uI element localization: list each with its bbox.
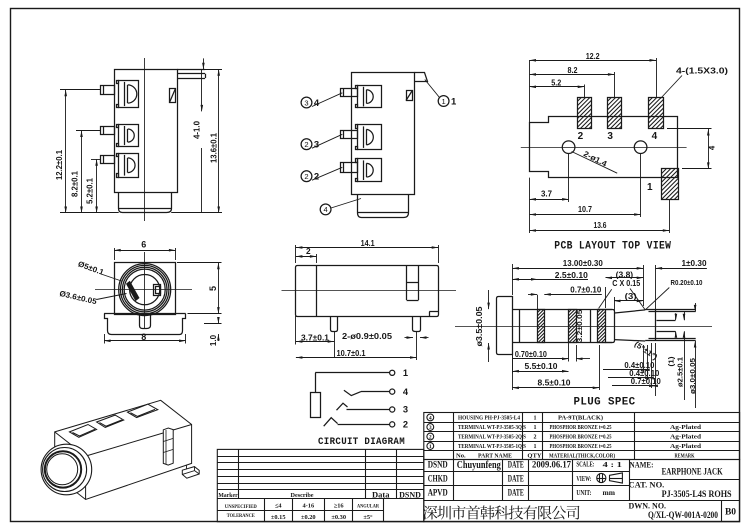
svg-text:R0.20±0.10: R0.20±0.10	[671, 278, 703, 287]
svg-text:0.7±0.10: 0.7±0.10	[631, 377, 662, 386]
svg-text:UNIT:: UNIT:	[576, 489, 591, 497]
svg-text:C X 0.15: C X 0.15	[612, 279, 641, 288]
svg-text:Ø3.6±0.05: Ø3.6±0.05	[59, 289, 99, 306]
svg-text:1±0.30: 1±0.30	[682, 259, 708, 268]
svg-text:ø3.0±0.05: ø3.0±0.05	[688, 357, 697, 394]
svg-text:≤4: ≤4	[275, 503, 283, 510]
svg-text:13.6: 13.6	[594, 221, 608, 230]
svg-text:2009.06.17: 2009.06.17	[532, 461, 571, 471]
svg-text:12.2±0.1: 12.2±0.1	[55, 149, 64, 180]
svg-text:DSND: DSND	[399, 491, 421, 500]
svg-text:PHOSPHOR BRONZE t=0.25: PHOSPHOR BRONZE t=0.25	[550, 435, 612, 441]
svg-text:Ø5±0.1: Ø5±0.1	[77, 259, 106, 277]
svg-text:2.5±0.10: 2.5±0.10	[555, 271, 589, 280]
svg-text:10.7±0.1: 10.7±0.1	[337, 349, 367, 358]
svg-text:5.5±0.10: 5.5±0.10	[525, 362, 559, 371]
svg-text:1: 1	[441, 97, 445, 106]
svg-text:3: 3	[304, 98, 308, 107]
svg-text:5.2±0.1: 5.2±0.1	[86, 177, 95, 204]
svg-text:Ag-Plated: Ag-Plated	[670, 444, 702, 450]
svg-text:3: 3	[403, 405, 408, 415]
svg-text:2: 2	[304, 172, 308, 181]
svg-text:3: 3	[607, 131, 613, 142]
svg-text:SCALE:: SCALE:	[576, 461, 594, 469]
svg-text:HOUSING PH-PJ-3505-L4: HOUSING PH-PJ-3505-L4	[458, 416, 520, 422]
svg-text:Ag-Plated: Ag-Plated	[670, 425, 702, 431]
svg-text:ANGULAR: ANGULAR	[357, 504, 380, 510]
svg-text:14.1: 14.1	[361, 239, 376, 248]
svg-text:13.6±0.1: 13.6±0.1	[210, 132, 219, 163]
svg-text:DATE: DATE	[508, 473, 524, 483]
svg-text:(3): (3)	[625, 292, 638, 301]
svg-text:PA-9T(BLACK): PA-9T(BLACK)	[558, 415, 603, 422]
svg-text:1: 1	[403, 368, 408, 378]
svg-text:8.2: 8.2	[568, 66, 579, 75]
svg-text:3.2±0.05: 3.2±0.05	[575, 310, 584, 343]
svg-text:No.: No.	[456, 452, 466, 459]
svg-text:CHKD: CHKD	[428, 473, 448, 483]
svg-text:6: 6	[141, 240, 146, 250]
svg-text:DATE: DATE	[508, 460, 524, 470]
svg-text:Q/XL-QW-001A-0200: Q/XL-QW-001A-0200	[648, 510, 718, 520]
svg-text:TERMINAL WT-PJ-3505-2Q.S: TERMINAL WT-PJ-3505-2Q.S	[458, 435, 527, 441]
svg-text:1: 1	[534, 416, 537, 422]
svg-text:3.7: 3.7	[541, 190, 552, 199]
svg-text:2: 2	[306, 246, 311, 256]
svg-text:DWN. NO.: DWN. NO.	[629, 502, 667, 511]
svg-text:1: 1	[647, 182, 653, 193]
svg-text:DATE: DATE	[508, 488, 524, 498]
svg-text:2-ø0.9±0.05: 2-ø0.9±0.05	[342, 332, 393, 341]
svg-text:CIRCUIT DIAGRAM: CIRCUIT DIAGRAM	[318, 436, 405, 448]
svg-text:MATERIAL(THICK,COLOR): MATERIAL(THICK,COLOR)	[549, 452, 615, 459]
svg-text:(5°±1°): (5°±1°)	[633, 339, 660, 362]
svg-text:10.7: 10.7	[578, 205, 592, 214]
svg-text:PJ-3505-L4S ROHS: PJ-3505-L4S ROHS	[662, 490, 732, 500]
svg-text:2: 2	[403, 420, 408, 430]
svg-text:4: 4	[652, 131, 658, 142]
svg-text:ø3.5±0.05: ø3.5±0.05	[475, 306, 484, 347]
svg-text:3: 3	[429, 425, 432, 431]
svg-text:13.00±0.30: 13.00±0.30	[563, 259, 604, 268]
svg-text:PLUG SPEC: PLUG SPEC	[574, 396, 636, 408]
svg-text:4-16: 4-16	[302, 503, 315, 510]
svg-text:4: 4	[708, 145, 717, 150]
svg-text:1: 1	[451, 96, 457, 107]
svg-text:1: 1	[534, 444, 537, 450]
svg-text:Data: Data	[372, 490, 390, 500]
svg-text:3.7±0.1: 3.7±0.1	[301, 334, 330, 343]
svg-text:TERMINAL WT-PJ-3505-1Q.S: TERMINAL WT-PJ-3505-1Q.S	[458, 444, 527, 450]
svg-text:QTY: QTY	[527, 452, 542, 459]
svg-text:≥16: ≥16	[334, 503, 345, 510]
svg-text:±0.20: ±0.20	[301, 514, 316, 521]
svg-text:±0.30: ±0.30	[331, 514, 346, 521]
svg-text:TOLERANCE: TOLERANCE	[227, 513, 255, 519]
svg-text:PHOSPHOR BRONZE t=0.25: PHOSPHOR BRONZE t=0.25	[550, 425, 612, 431]
svg-text:EARPHONE JACK: EARPHONE JACK	[662, 468, 723, 478]
svg-text:PART NAME: PART NAME	[478, 452, 513, 459]
svg-text:4-(1.5X3.0): 4-(1.5X3.0)	[676, 66, 729, 75]
svg-text:±0.15: ±0.15	[271, 514, 286, 521]
svg-text:2: 2	[578, 131, 584, 142]
svg-text:B0: B0	[725, 507, 736, 517]
svg-text:4: 4	[323, 205, 327, 214]
svg-text:Ag-Plated: Ag-Plated	[670, 435, 702, 441]
svg-text:DSND: DSND	[428, 460, 448, 470]
svg-text:2: 2	[314, 172, 319, 183]
svg-text:4-1.0: 4-1.0	[193, 120, 202, 139]
svg-text:±5°: ±5°	[363, 514, 373, 521]
svg-text:mm: mm	[603, 488, 616, 497]
svg-text:Marker: Marker	[218, 493, 238, 499]
svg-text:0.7±0.10: 0.7±0.10	[570, 285, 602, 294]
svg-text:2: 2	[429, 435, 432, 441]
svg-text:VIEW:: VIEW:	[576, 475, 591, 483]
svg-text:Chuyunfeng: Chuyunfeng	[457, 460, 502, 471]
svg-text:4: 4	[403, 387, 409, 397]
svg-text:APVD: APVD	[428, 488, 448, 498]
svg-text:8.5±0.10: 8.5±0.10	[538, 379, 572, 388]
svg-text:4: 4	[429, 416, 432, 422]
svg-text:8.2±0.1: 8.2±0.1	[71, 170, 80, 197]
svg-text:0.70±0.10: 0.70±0.10	[515, 350, 548, 359]
svg-text:2: 2	[304, 140, 308, 149]
svg-text:PCB LAYOUT TOP VIEW: PCB LAYOUT TOP VIEW	[554, 240, 671, 252]
svg-text:2: 2	[534, 435, 537, 441]
svg-text:8: 8	[141, 332, 146, 342]
svg-text:5: 5	[208, 286, 218, 291]
svg-text:1: 1	[534, 425, 537, 431]
svg-text:NAME:: NAME:	[630, 460, 654, 470]
svg-text:REMARK: REMARK	[675, 452, 696, 459]
svg-text:CAT. NO.: CAT. NO.	[629, 480, 665, 490]
svg-text:UNSPECIFIED: UNSPECIFIED	[225, 504, 257, 510]
svg-text:4 : 1: 4 : 1	[603, 460, 623, 469]
svg-text:5.2: 5.2	[551, 79, 562, 88]
svg-text:TERMINAL WT-PJ-3505-3Q.S: TERMINAL WT-PJ-3505-3Q.S	[458, 425, 527, 431]
svg-text:Describe: Describe	[290, 492, 313, 499]
svg-text:12.2: 12.2	[586, 52, 601, 61]
svg-text:ø2.5±0.1: ø2.5±0.1	[676, 356, 685, 387]
svg-text:1: 1	[429, 444, 432, 450]
svg-text:2-ø1.4: 2-ø1.4	[582, 149, 609, 169]
svg-text:1.0: 1.0	[209, 334, 218, 346]
svg-text:PHOSPHOR BRONZE t=0.25: PHOSPHOR BRONZE t=0.25	[550, 444, 612, 450]
svg-text:(1): (1)	[667, 356, 676, 367]
